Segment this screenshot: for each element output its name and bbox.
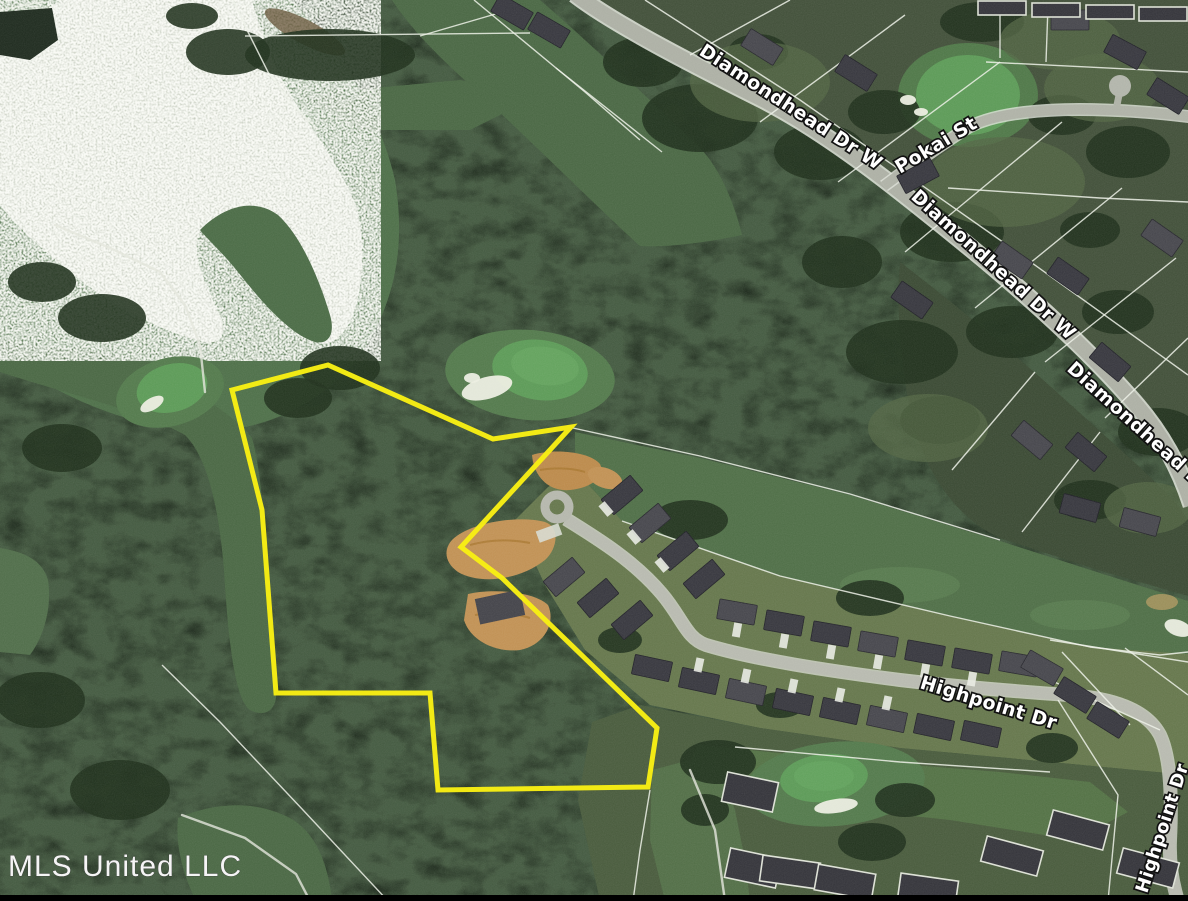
photo-grain-overlay xyxy=(0,0,1188,901)
bottom-border-bar xyxy=(0,895,1188,901)
satellite-map[interactable]: Diamondhead Dr W Diamondhead Dr W Diamon… xyxy=(0,0,1188,901)
satellite-map-image: Diamondhead Dr W Diamondhead Dr W Diamon… xyxy=(0,0,1188,901)
watermark-text: MLS United LLC xyxy=(8,850,242,883)
